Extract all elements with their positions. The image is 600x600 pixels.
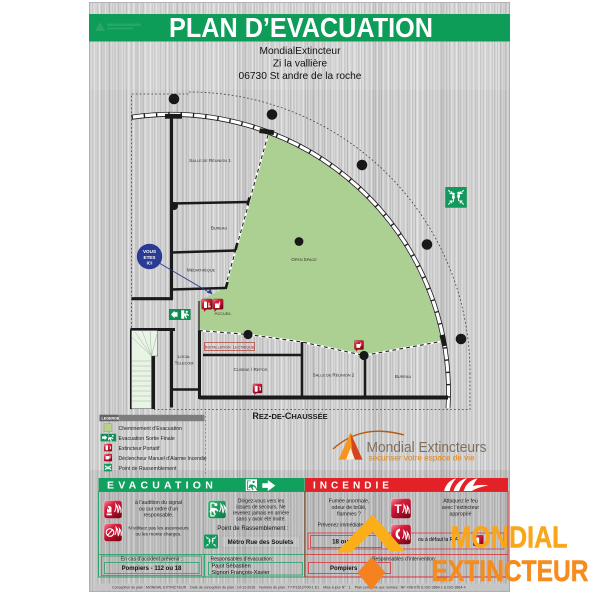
svg-text:EVACUATION: EVACUATION <box>107 480 217 491</box>
svg-text:Attaquez le feu: Attaquez le feu <box>443 499 478 505</box>
svg-text:ETES: ETES <box>144 255 156 260</box>
svg-text:Cheminement d’Evacuation: Cheminement d’Evacuation <box>119 426 183 432</box>
svg-text:BUREAU: BUREAU <box>395 374 412 379</box>
svg-text:Pompiers: Pompiers <box>330 566 358 572</box>
svg-text:sans y avoir été invité.: sans y avoir été invité. <box>236 517 285 523</box>
svg-text:Extincteur Portatif: Extincteur Portatif <box>119 446 160 452</box>
svg-text:En cas d’accident prévenir :: En cas d’accident prévenir : <box>121 557 182 563</box>
svg-text:Signori François-Xavier: Signori François-Xavier <box>212 570 270 576</box>
svg-text:LEGENDE: LEGENDE <box>102 417 120 421</box>
svg-text:PLAN D’EVACUATION: PLAN D’EVACUATION <box>169 12 433 43</box>
svg-text:Evacuation Sortie Finale: Evacuation Sortie Finale <box>119 436 175 442</box>
svg-text:Point de Rassemblement: Point de Rassemblement <box>119 466 178 472</box>
svg-text:TELECOM: TELECOM <box>175 361 194 366</box>
svg-text:sécuriser votre espace de vie: sécuriser votre espace de vie <box>369 453 476 462</box>
svg-text:REZ-DE-CHAUSSÉE: REZ-DE-CHAUSSÉE <box>252 411 327 421</box>
svg-text:Responsables d’évacuation:: Responsables d’évacuation: <box>211 557 274 563</box>
svg-text:VOUS: VOUS <box>143 249 156 254</box>
svg-text:EXTINCTEUR: EXTINCTEUR <box>432 555 589 588</box>
svg-text:SALLE DE RÉUNION 1: SALLE DE RÉUNION 1 <box>189 158 231 163</box>
svg-text:N’utilisez pas les ascenseurs: N’utilisez pas les ascenseurs <box>128 526 189 531</box>
svg-text:CUISINE / REPOS: CUISINE / REPOS <box>234 367 268 372</box>
svg-text:avec l’extincteur: avec l’extincteur <box>442 505 479 511</box>
svg-text:responsable.: responsable. <box>144 513 174 519</box>
svg-text:Zi la vallière: Zi la vallière <box>273 59 328 70</box>
svg-text:Métro Rue des Soulets: Métro Rue des Soulets <box>228 539 294 546</box>
svg-text:approprié: approprié <box>450 512 472 518</box>
svg-text:flammes ?: flammes ? <box>337 512 361 518</box>
svg-text:à l’audition du signal: à l’audition du signal <box>135 500 182 506</box>
svg-text:INCENDIE: INCENDIE <box>313 480 393 491</box>
svg-text:06730 St andre de la roche: 06730 St andre de la roche <box>239 71 362 82</box>
svg-text:Responsables d’intervention:: Responsables d’intervention: <box>372 557 436 563</box>
svg-text:LOCAL: LOCAL <box>178 354 191 359</box>
svg-text:Fumée anormale,: Fumée anormale, <box>329 499 370 505</box>
svg-text:SALLE DE RÉUNION 2: SALLE DE RÉUNION 2 <box>313 373 355 378</box>
svg-text:ou sur ordre d’un: ou sur ordre d’un <box>139 506 178 512</box>
svg-text:ou les monte charges.: ou les monte charges. <box>135 532 181 537</box>
svg-text:Pompiers - 112 ou 18: Pompiers - 112 ou 18 <box>122 566 182 572</box>
svg-text:INSTALLATION LECTRIQUE: INSTALLATION LECTRIQUE <box>205 345 255 350</box>
svg-text:MÉDIATHÈQUE: MÉDIATHÈQUE <box>187 268 216 273</box>
svg-text:ACCUEIL: ACCUEIL <box>214 311 231 316</box>
svg-text:Déclencheur Manuel d’Alarme In: Déclencheur Manuel d’Alarme Incendie <box>119 456 207 462</box>
svg-text:Pajot Sébastien: Pajot Sébastien <box>212 564 251 570</box>
svg-text:ICI: ICI <box>147 261 153 266</box>
svg-text:MondialExtincteur: MondialExtincteur <box>260 46 342 57</box>
svg-text:Point de Rassemblement :: Point de Rassemblement : <box>217 525 289 532</box>
svg-text:BUREAU: BUREAU <box>211 226 228 231</box>
svg-text:Conception du plan : MONDIAL E: Conception du plan : MONDIAL EXTINCTEUR … <box>112 585 466 589</box>
svg-text:T: T <box>394 502 402 516</box>
svg-text:OPEN SPACE: OPEN SPACE <box>291 257 317 262</box>
svg-text:MONDIAL: MONDIAL <box>451 520 568 555</box>
svg-text:odeur de brûlé,: odeur de brûlé, <box>332 505 367 511</box>
